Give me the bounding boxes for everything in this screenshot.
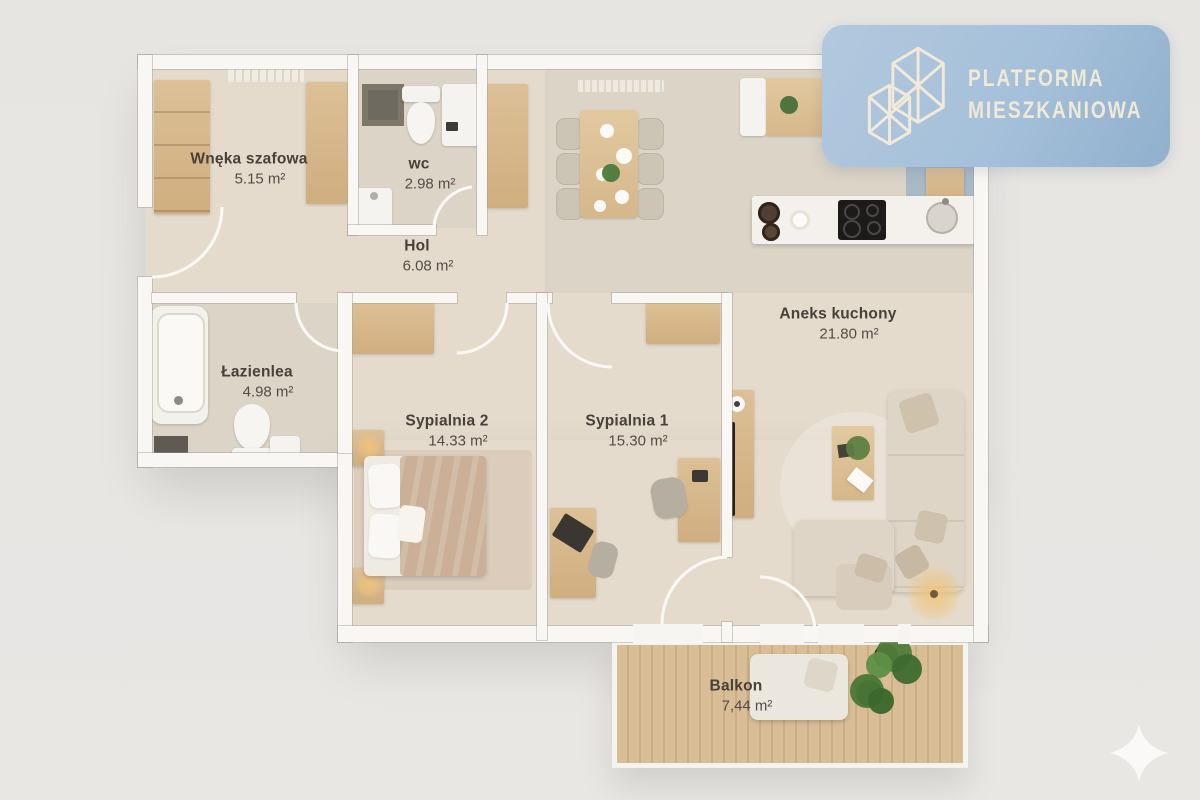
room-area: 14.33 m² — [427, 433, 488, 450]
wall — [537, 293, 547, 640]
shaft — [362, 84, 404, 126]
kitchen-sink — [926, 202, 958, 234]
cushion — [913, 509, 949, 545]
wardrobe — [352, 302, 434, 354]
room-name: Aneks kuchony — [779, 306, 896, 324]
railing-post — [818, 624, 864, 644]
wall — [338, 453, 352, 642]
toilet-tank — [402, 86, 440, 102]
room-label-hol: Hol 6.08 m² — [381, 238, 454, 275]
burner — [866, 204, 879, 217]
pot — [762, 223, 780, 241]
plate — [616, 148, 632, 164]
room-area: 4.98 m² — [243, 384, 294, 401]
pot — [758, 202, 780, 224]
pillow — [396, 504, 427, 543]
hall-cabinet — [486, 84, 528, 208]
burner — [867, 221, 881, 235]
room-label-wc: wc 2.98 m² — [383, 156, 456, 193]
wardrobe — [646, 302, 720, 344]
room-area: 7,44 m² — [722, 698, 773, 715]
room-area: 15.30 m² — [607, 433, 668, 450]
room-area: 6.08 m² — [403, 258, 454, 275]
plant — [780, 96, 798, 114]
burner — [844, 204, 860, 220]
room-label-balkon: Balkon 7,44 m² — [700, 678, 773, 715]
pillow — [368, 463, 403, 509]
faucet — [370, 192, 378, 200]
bathtub-faucet — [174, 396, 183, 405]
wall — [338, 293, 352, 453]
plate — [594, 200, 606, 212]
railing-post — [760, 624, 804, 644]
faucet — [942, 198, 949, 205]
room-label-sypialnia-1: Sypialnia 1 15.30 m² — [585, 413, 668, 450]
room-name: Wnęka szafowa — [190, 151, 307, 169]
room-area: 2.98 m² — [405, 176, 456, 193]
radiator — [578, 80, 664, 92]
wardrobe-left — [154, 80, 210, 214]
wardrobe-right — [306, 82, 348, 204]
room-area: 5.15 m² — [212, 171, 307, 188]
washing-machine-panel — [446, 122, 458, 131]
railing-post — [633, 624, 703, 644]
plant — [602, 164, 620, 182]
wall — [348, 55, 358, 235]
wall — [138, 55, 152, 207]
plant — [846, 436, 870, 460]
brand-badge: PLATFORMA MIESZKANIOWA — [822, 25, 1170, 167]
building-lattice-icon — [866, 38, 950, 156]
brand-name-line2: MIESZKANIOWA — [968, 95, 1143, 127]
wall — [138, 453, 352, 467]
wall — [152, 293, 296, 303]
wall — [138, 277, 152, 467]
room-label-sypialnia-2: Sypialnia 2 14.33 m² — [405, 413, 488, 450]
wall — [477, 55, 487, 235]
room-name: Łazienlea — [221, 364, 294, 382]
chair — [636, 188, 664, 220]
chair — [636, 153, 664, 185]
wall — [722, 293, 732, 557]
laptop — [692, 470, 708, 482]
chair — [636, 118, 664, 150]
room-name: Hol — [381, 238, 454, 256]
sparkle-icon — [1110, 724, 1168, 782]
room-label-wneka-szafowa: Wnęka szafowa 5.15 m² — [190, 151, 307, 188]
kitchen-cabinet — [740, 78, 766, 136]
wall — [722, 622, 732, 642]
room-label-aneks-kuchony: Aneks kuchony 21.80 m² — [779, 306, 896, 343]
room-name: Balkon — [700, 678, 773, 696]
room-name: wc — [383, 156, 456, 174]
floorplan-screenshot: Wnęka szafowa 5.15 m² wc 2.98 m² Hol 6.0… — [0, 0, 1200, 800]
washing-machine — [442, 84, 482, 146]
plate — [790, 210, 810, 230]
room-label-lazienka: Łazienlea 4.98 m² — [221, 364, 294, 401]
wall — [348, 225, 436, 235]
wall — [344, 293, 457, 303]
room-area: 21.80 m² — [801, 326, 896, 343]
cooktop — [838, 200, 886, 240]
plant — [868, 688, 894, 714]
floor-lamp-base — [930, 590, 938, 598]
wall — [612, 293, 726, 303]
plant — [892, 654, 922, 684]
closet-rail — [228, 68, 304, 82]
room-name: Sypialnia 1 — [585, 413, 668, 431]
railing-post — [898, 624, 911, 644]
brand-name-line1: PLATFORMA — [968, 63, 1143, 95]
burner — [843, 220, 861, 238]
room-name: Sypialnia 2 — [405, 413, 488, 431]
plate — [615, 190, 629, 204]
plate — [600, 124, 614, 138]
